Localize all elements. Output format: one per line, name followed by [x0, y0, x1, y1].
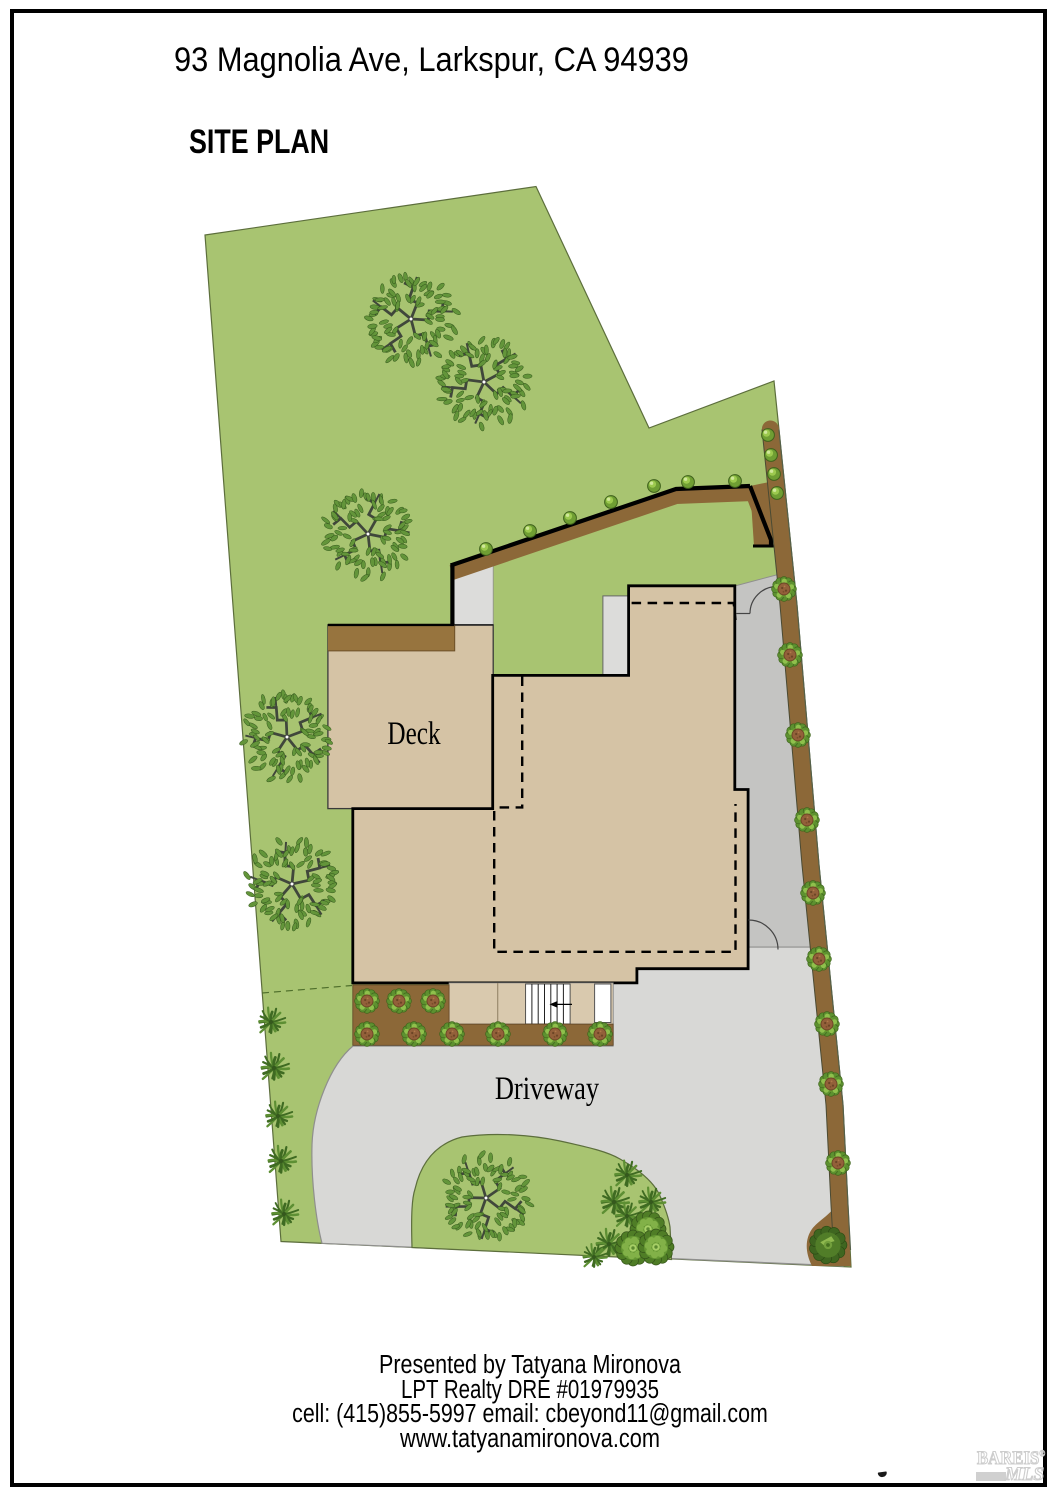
svg-text:Driveway: Driveway: [495, 1070, 599, 1106]
svg-text:Deck: Deck: [387, 716, 440, 752]
